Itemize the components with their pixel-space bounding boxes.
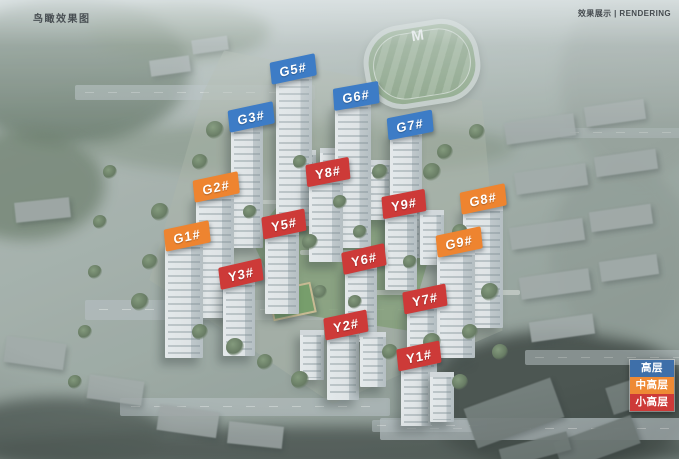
building-tag-g2: G2# <box>193 171 240 202</box>
legend: 高层中高层小高层 <box>630 360 674 411</box>
aerial-rendering-canvas: M G5#G6#G3#G7#G2#G1#G8#G9#Y8#Y5#Y9#Y3#Y6… <box>0 0 679 459</box>
building-tag-y3: Y3# <box>218 258 264 290</box>
building-tag-g8: G8# <box>460 183 507 214</box>
caption-birdseye-view: 鸟瞰效果图 <box>33 10 91 25</box>
building-tag-g9: G9# <box>436 226 483 257</box>
building-tag-y6: Y6# <box>341 243 387 275</box>
building-tag-g5: G5# <box>270 53 317 84</box>
caption-rendering: 效果展示 | RENDERING <box>578 8 671 19</box>
building-tag-g1: G1# <box>164 220 211 251</box>
legend-item-small-high-rise: 小高层 <box>630 394 674 411</box>
building-tags-layer: G5#G6#G3#G7#G2#G1#G8#G9#Y8#Y5#Y9#Y3#Y6#Y… <box>0 0 679 459</box>
building-tag-y2: Y2# <box>323 309 368 340</box>
building-tag-y8: Y8# <box>305 157 350 187</box>
building-tag-g3: G3# <box>228 101 275 132</box>
building-tag-y5: Y5# <box>261 208 306 239</box>
building-tag-y1: Y1# <box>396 340 441 371</box>
legend-item-mid-high-rise: 中高层 <box>630 377 674 394</box>
building-tag-g7: G7# <box>387 110 434 141</box>
building-tag-g6: G6# <box>333 81 379 111</box>
building-tag-y9: Y9# <box>381 189 426 219</box>
building-tag-y7: Y7# <box>402 283 447 314</box>
legend-item-high-rise: 高层 <box>630 360 674 377</box>
